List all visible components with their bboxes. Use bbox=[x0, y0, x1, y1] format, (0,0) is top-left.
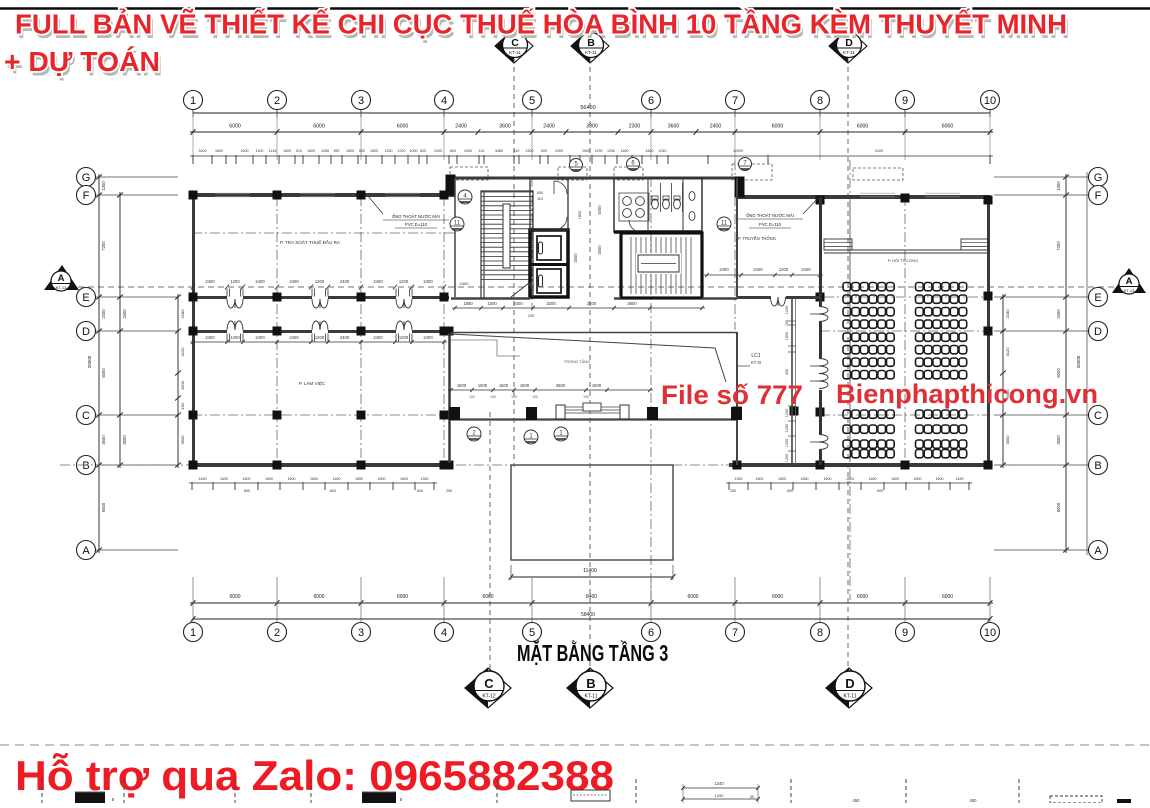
svg-text:2400: 2400 bbox=[255, 279, 265, 284]
svg-text:1490: 1490 bbox=[956, 477, 964, 481]
svg-text:4500: 4500 bbox=[597, 245, 602, 255]
svg-text:1: 1 bbox=[190, 627, 196, 639]
svg-text:2180: 2180 bbox=[180, 309, 185, 319]
svg-text:1200: 1200 bbox=[315, 335, 325, 340]
svg-text:100: 100 bbox=[785, 320, 789, 326]
svg-text:12000: 12000 bbox=[733, 149, 743, 153]
svg-text:1200: 1200 bbox=[230, 279, 240, 284]
svg-text:3: 3 bbox=[358, 627, 364, 639]
svg-text:P. TRUYỀN THỐNG: P. TRUYỀN THỐNG bbox=[738, 236, 776, 241]
svg-text:1600: 1600 bbox=[778, 477, 786, 481]
svg-text:110: 110 bbox=[537, 197, 543, 201]
svg-text:KT-11: KT-11 bbox=[585, 50, 597, 55]
svg-text:1600: 1600 bbox=[243, 477, 251, 481]
svg-text:1340: 1340 bbox=[714, 781, 724, 786]
svg-text:100: 100 bbox=[532, 395, 538, 399]
svg-text:1145: 1145 bbox=[269, 149, 277, 153]
svg-text:1200: 1200 bbox=[785, 454, 789, 462]
svg-text:C: C bbox=[484, 676, 494, 691]
svg-text:600: 600 bbox=[417, 489, 423, 493]
svg-text:1000: 1000 bbox=[582, 149, 590, 153]
svg-text:450: 450 bbox=[853, 798, 861, 803]
svg-text:5: 5 bbox=[529, 627, 535, 639]
svg-text:1200: 1200 bbox=[785, 424, 789, 432]
svg-text:2180: 2180 bbox=[1005, 309, 1010, 319]
svg-text:1500: 1500 bbox=[487, 301, 497, 306]
svg-text:1350: 1350 bbox=[421, 477, 429, 481]
svg-text:600: 600 bbox=[537, 191, 543, 195]
svg-text:1600: 1600 bbox=[215, 149, 223, 153]
svg-text:1040: 1040 bbox=[659, 149, 667, 153]
svg-text:1200: 1200 bbox=[785, 306, 789, 314]
svg-text:3100: 3100 bbox=[199, 149, 207, 153]
svg-text:1600: 1600 bbox=[180, 380, 185, 390]
svg-text:7200: 7200 bbox=[1056, 241, 1061, 251]
svg-text:TRỐNG TẦNG: TRỐNG TẦNG bbox=[564, 359, 591, 364]
svg-text:1200: 1200 bbox=[785, 439, 789, 447]
svg-text:6000: 6000 bbox=[772, 594, 783, 600]
svg-text:F: F bbox=[83, 190, 90, 202]
svg-text:2400: 2400 bbox=[423, 335, 433, 340]
svg-text:6000: 6000 bbox=[942, 594, 953, 600]
svg-text:600: 600 bbox=[787, 489, 793, 493]
svg-text:6: 6 bbox=[648, 627, 654, 639]
svg-text:KT-13: KT-13 bbox=[56, 285, 67, 290]
svg-text:2400: 2400 bbox=[373, 279, 383, 284]
svg-text:1600: 1600 bbox=[288, 477, 296, 481]
svg-text:1500: 1500 bbox=[457, 383, 467, 388]
svg-text:250: 250 bbox=[730, 489, 736, 493]
svg-text:2400: 2400 bbox=[1056, 309, 1061, 319]
svg-text:3500: 3500 bbox=[101, 435, 106, 445]
svg-text:100: 100 bbox=[583, 395, 589, 399]
svg-text:A: A bbox=[82, 545, 90, 557]
svg-text:1055: 1055 bbox=[321, 149, 329, 153]
svg-text:3600: 3600 bbox=[499, 124, 511, 130]
svg-text:4500: 4500 bbox=[573, 253, 578, 263]
svg-text:4000: 4000 bbox=[597, 205, 602, 215]
svg-text:1500: 1500 bbox=[499, 383, 509, 388]
svg-text:2400: 2400 bbox=[101, 309, 106, 319]
svg-text:130: 130 bbox=[180, 402, 185, 409]
svg-text:10: 10 bbox=[984, 627, 996, 639]
svg-text:F: F bbox=[1095, 190, 1102, 202]
svg-text:2300: 2300 bbox=[526, 149, 534, 153]
svg-text:1600: 1600 bbox=[400, 477, 408, 481]
svg-text:950: 950 bbox=[334, 149, 340, 153]
svg-text:11: 11 bbox=[454, 221, 461, 227]
svg-text:1200: 1200 bbox=[785, 409, 789, 417]
svg-text:1600: 1600 bbox=[869, 477, 877, 481]
svg-text:1600: 1600 bbox=[621, 149, 629, 153]
svg-text:510: 510 bbox=[296, 149, 302, 153]
svg-text:2400: 2400 bbox=[373, 335, 383, 340]
svg-text:7: 7 bbox=[732, 95, 738, 107]
svg-text:G: G bbox=[1094, 172, 1103, 184]
svg-text:2400: 2400 bbox=[460, 281, 470, 286]
svg-text:1600: 1600 bbox=[346, 149, 354, 153]
svg-text:6000: 6000 bbox=[397, 594, 408, 600]
svg-text:1200: 1200 bbox=[399, 279, 409, 284]
svg-text:2400: 2400 bbox=[753, 267, 763, 272]
svg-text:9: 9 bbox=[902, 95, 908, 107]
svg-text:2400: 2400 bbox=[205, 279, 215, 284]
svg-text:D: D bbox=[82, 326, 90, 338]
svg-text:100: 100 bbox=[511, 395, 517, 399]
svg-text:E: E bbox=[1094, 292, 1101, 304]
svg-text:2400: 2400 bbox=[340, 335, 350, 340]
svg-text:2400: 2400 bbox=[423, 279, 433, 284]
svg-text:1490: 1490 bbox=[199, 477, 207, 481]
svg-text:1300: 1300 bbox=[1056, 181, 1061, 191]
svg-text:6000: 6000 bbox=[229, 124, 241, 130]
svg-text:KT-11: KT-11 bbox=[844, 694, 857, 700]
svg-text:1220: 1220 bbox=[398, 149, 406, 153]
svg-text:1000: 1000 bbox=[410, 149, 418, 153]
svg-text:110: 110 bbox=[479, 149, 485, 153]
svg-text:3600: 3600 bbox=[627, 301, 637, 306]
svg-text:C: C bbox=[1094, 410, 1102, 422]
svg-text:6000: 6000 bbox=[1056, 502, 1061, 512]
svg-text:600: 600 bbox=[420, 149, 426, 153]
svg-text:6000: 6000 bbox=[942, 124, 954, 130]
svg-text:3500: 3500 bbox=[1056, 435, 1061, 445]
svg-text:8400: 8400 bbox=[586, 594, 597, 600]
svg-text:2400: 2400 bbox=[340, 279, 350, 284]
svg-text:B: B bbox=[1094, 460, 1101, 472]
svg-text:2400: 2400 bbox=[205, 335, 215, 340]
svg-text:2400: 2400 bbox=[555, 149, 563, 153]
svg-text:7200: 7200 bbox=[101, 241, 106, 251]
svg-text:1200: 1200 bbox=[399, 335, 409, 340]
svg-text:600: 600 bbox=[330, 489, 336, 493]
svg-text:3100: 3100 bbox=[875, 149, 883, 153]
svg-text:3300: 3300 bbox=[586, 124, 598, 130]
svg-text:1600: 1600 bbox=[824, 477, 832, 481]
svg-text:KT-3I: KT-3I bbox=[751, 360, 761, 365]
svg-text:50: 50 bbox=[750, 795, 754, 799]
svg-text:KT-13: KT-13 bbox=[1124, 288, 1135, 293]
svg-text:D: D bbox=[1094, 326, 1102, 338]
svg-text:E: E bbox=[82, 292, 89, 304]
svg-text:1850: 1850 bbox=[463, 301, 473, 306]
svg-text:KT-11: KT-11 bbox=[585, 694, 598, 700]
svg-text:2400: 2400 bbox=[513, 301, 523, 306]
svg-text:1600: 1600 bbox=[241, 149, 249, 153]
svg-text:1600: 1600 bbox=[378, 477, 386, 481]
svg-text:File số 777: File số 777 bbox=[661, 380, 803, 410]
svg-text:1500: 1500 bbox=[785, 332, 789, 340]
svg-text:KT-11: KT-11 bbox=[509, 50, 521, 55]
svg-text:450: 450 bbox=[970, 798, 978, 803]
svg-text:PVC D=110: PVC D=110 bbox=[405, 222, 428, 227]
svg-text:220: 220 bbox=[528, 314, 534, 318]
svg-text:1250: 1250 bbox=[385, 149, 393, 153]
svg-text:1600: 1600 bbox=[283, 149, 291, 153]
svg-text:A: A bbox=[1126, 276, 1133, 287]
svg-text:2400: 2400 bbox=[543, 124, 555, 130]
svg-text:1250: 1250 bbox=[607, 149, 615, 153]
svg-text:2400: 2400 bbox=[289, 335, 299, 340]
svg-text:G: G bbox=[82, 172, 91, 184]
svg-text:1100: 1100 bbox=[256, 149, 264, 153]
svg-text:FULL BẢN VẼ THIẾT KẾ CHI CỤC: FULL BẢN VẼ THIẾT KẾ CHI CỤC THUẾ HÒA BÌ… bbox=[15, 8, 1067, 40]
svg-text:3500: 3500 bbox=[122, 435, 127, 445]
svg-text:1290: 1290 bbox=[715, 793, 725, 798]
svg-text:PVC D=110: PVC D=110 bbox=[759, 222, 782, 227]
svg-text:ỐNG THOÁT NƯỚC MÁI: ỐNG THOÁT NƯỚC MÁI bbox=[392, 214, 440, 219]
svg-text:6000: 6000 bbox=[857, 124, 869, 130]
svg-text:1600: 1600 bbox=[578, 211, 582, 219]
svg-text:1600: 1600 bbox=[370, 149, 378, 153]
svg-text:6: 6 bbox=[648, 95, 654, 107]
svg-text:110: 110 bbox=[514, 149, 520, 153]
svg-text:5: 5 bbox=[529, 95, 535, 107]
svg-text:2: 2 bbox=[274, 627, 280, 639]
svg-text:P. LÀM VIỆC: P. LÀM VIỆC bbox=[299, 379, 326, 386]
svg-text:4: 4 bbox=[441, 627, 447, 639]
svg-text:1600: 1600 bbox=[936, 477, 944, 481]
svg-text:6060: 6060 bbox=[482, 594, 493, 600]
svg-text:MẶT BẰNG TẦNG 3: MẶT BẰNG TẦNG 3 bbox=[517, 639, 668, 667]
svg-text:11: 11 bbox=[721, 221, 728, 227]
svg-text:2300: 2300 bbox=[629, 124, 641, 130]
svg-text:1500: 1500 bbox=[592, 383, 602, 388]
svg-text:1290: 1290 bbox=[595, 149, 603, 153]
svg-text:2400: 2400 bbox=[464, 149, 472, 153]
svg-text:7: 7 bbox=[732, 627, 738, 639]
svg-text:1200: 1200 bbox=[230, 335, 240, 340]
svg-text:56400: 56400 bbox=[580, 105, 595, 111]
svg-text:9: 9 bbox=[902, 627, 908, 639]
svg-text:100: 100 bbox=[490, 395, 496, 399]
svg-text:6000: 6000 bbox=[687, 594, 698, 600]
svg-text:2400: 2400 bbox=[710, 124, 722, 130]
svg-text:1600: 1600 bbox=[265, 477, 273, 481]
svg-text:3500: 3500 bbox=[1005, 435, 1010, 445]
svg-text:1200: 1200 bbox=[779, 267, 789, 272]
svg-text:2400: 2400 bbox=[434, 149, 442, 153]
svg-text:A: A bbox=[1094, 545, 1102, 557]
svg-text:C: C bbox=[82, 410, 90, 422]
svg-text:2500: 2500 bbox=[587, 301, 597, 306]
svg-text:1500: 1500 bbox=[478, 383, 488, 388]
svg-text:1200: 1200 bbox=[315, 279, 325, 284]
svg-text:4120: 4120 bbox=[1005, 347, 1010, 357]
svg-text:2400: 2400 bbox=[122, 309, 127, 319]
svg-text:6000: 6000 bbox=[857, 594, 868, 600]
svg-text:6000: 6000 bbox=[1056, 368, 1061, 378]
svg-text:6000: 6000 bbox=[101, 502, 106, 512]
svg-text:600: 600 bbox=[359, 149, 365, 153]
svg-text:KT-11: KT-11 bbox=[843, 50, 855, 55]
svg-text:250: 250 bbox=[446, 489, 452, 493]
svg-text:2400: 2400 bbox=[255, 335, 265, 340]
svg-text:26500: 26500 bbox=[87, 355, 92, 368]
svg-text:+ DỰ TOÁN: + DỰ TOÁN bbox=[4, 46, 160, 77]
svg-text:3480: 3480 bbox=[495, 149, 503, 153]
svg-text:3: 3 bbox=[358, 95, 364, 107]
svg-text:ỐNG THOÁT NƯỚC MÁI: ỐNG THOÁT NƯỚC MÁI bbox=[746, 213, 794, 218]
svg-text:6000: 6000 bbox=[313, 594, 324, 600]
svg-text:600: 600 bbox=[877, 489, 883, 493]
svg-text:100: 100 bbox=[469, 395, 475, 399]
svg-text:600: 600 bbox=[244, 489, 250, 493]
svg-text:B: B bbox=[82, 460, 89, 472]
svg-text:11400: 11400 bbox=[583, 568, 597, 574]
svg-text:2400: 2400 bbox=[801, 267, 811, 272]
svg-text:1600: 1600 bbox=[333, 477, 341, 481]
svg-text:1600: 1600 bbox=[220, 477, 228, 481]
svg-text:1300: 1300 bbox=[101, 181, 106, 191]
svg-text:8: 8 bbox=[817, 627, 823, 639]
svg-text:3600: 3600 bbox=[556, 383, 566, 388]
svg-text:1350: 1350 bbox=[735, 477, 743, 481]
svg-text:4: 4 bbox=[441, 95, 447, 107]
svg-text:10: 10 bbox=[984, 95, 996, 107]
svg-text:1850: 1850 bbox=[355, 477, 363, 481]
svg-text:2: 2 bbox=[274, 95, 280, 107]
svg-text:1: 1 bbox=[190, 95, 196, 107]
svg-text:6000: 6000 bbox=[101, 368, 106, 378]
svg-text:LC1: LC1 bbox=[751, 353, 760, 359]
svg-text:1500: 1500 bbox=[520, 383, 530, 388]
svg-text:1600: 1600 bbox=[646, 149, 654, 153]
svg-text:KT-12: KT-12 bbox=[482, 694, 496, 700]
svg-text:P. TRA SOÁT THUẾ ĐẦU RA: P. TRA SOÁT THUẾ ĐẦU RA bbox=[280, 239, 341, 245]
svg-text:6000: 6000 bbox=[397, 124, 409, 130]
svg-text:6000: 6000 bbox=[772, 124, 784, 130]
svg-text:1600: 1600 bbox=[310, 477, 318, 481]
svg-text:A: A bbox=[58, 273, 65, 284]
svg-text:6000: 6000 bbox=[229, 594, 240, 600]
svg-text:6000: 6000 bbox=[313, 124, 325, 130]
svg-text:400: 400 bbox=[785, 369, 789, 375]
svg-text:3200: 3200 bbox=[546, 301, 556, 306]
svg-text:1600: 1600 bbox=[756, 477, 764, 481]
svg-text:Bienphapthicong.vn: Bienphapthicong.vn bbox=[836, 379, 1098, 409]
svg-text:1600: 1600 bbox=[891, 477, 899, 481]
svg-text:3600: 3600 bbox=[668, 124, 680, 130]
svg-text:D: D bbox=[845, 676, 854, 691]
svg-text:58400: 58400 bbox=[581, 612, 595, 618]
svg-text:1600: 1600 bbox=[914, 477, 922, 481]
svg-text:2400: 2400 bbox=[719, 267, 729, 272]
svg-text:2400: 2400 bbox=[455, 124, 467, 130]
svg-text:3500: 3500 bbox=[180, 435, 185, 445]
svg-text:2400: 2400 bbox=[289, 279, 299, 284]
svg-text:600: 600 bbox=[541, 149, 547, 153]
svg-text:26500: 26500 bbox=[1076, 355, 1081, 368]
svg-text:1650: 1650 bbox=[801, 477, 809, 481]
svg-text:8: 8 bbox=[817, 95, 823, 107]
svg-text:1600: 1600 bbox=[307, 149, 315, 153]
svg-text:B: B bbox=[586, 676, 595, 691]
svg-text:600: 600 bbox=[450, 149, 456, 153]
svg-text:4120: 4120 bbox=[180, 347, 185, 357]
svg-text:P. HỘI TRƯỜNG: P. HỘI TRƯỜNG bbox=[888, 258, 919, 263]
